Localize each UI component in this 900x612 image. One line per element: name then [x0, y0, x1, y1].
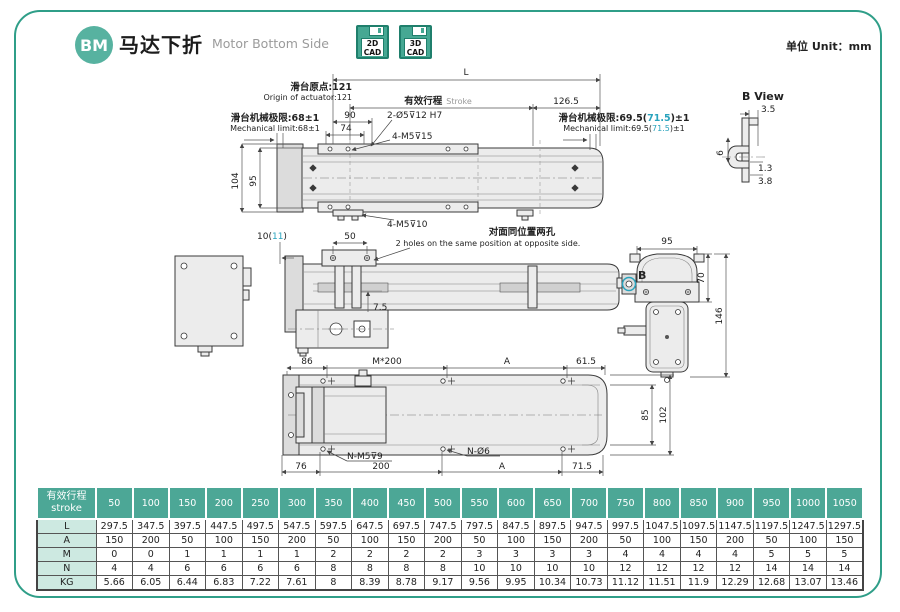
table-row: L297.5347.5397.5447.5497.5547.5597.5647.… [37, 519, 863, 534]
table-cell: 9.95 [498, 576, 535, 591]
row-label: N [37, 562, 96, 576]
table-cell: 100 [644, 534, 681, 548]
b-view: B View 3.5 6 1.3 3.8 [716, 90, 784, 187]
motor-end-view [175, 256, 251, 356]
table-cell: 11.9 [680, 576, 717, 591]
table-cell: 10 [571, 562, 608, 576]
table-cell: 8.78 [388, 576, 425, 591]
stroke-col-header: 900 [717, 487, 754, 519]
table-cell: 5 [753, 548, 790, 562]
dim-85: 85 [641, 409, 651, 420]
table-cell: 497.5 [242, 519, 279, 534]
limit-left-zh: 滑台机械极限:68±1 [231, 112, 320, 124]
model-badge: BM [75, 26, 113, 64]
table-cell: 4 [680, 548, 717, 562]
table-cell: 447.5 [206, 519, 243, 534]
table-cell: 897.5 [534, 519, 571, 534]
table-cell: 397.5 [169, 519, 206, 534]
table-cell: 1147.5 [717, 519, 754, 534]
table-cell: 7.22 [242, 576, 279, 591]
dim-10-11: 10(11) [257, 232, 287, 242]
b-callout-label: B [638, 269, 646, 282]
table-cell: 347.5 [133, 519, 170, 534]
table-row: N44666688881010101012121212141414 [37, 562, 863, 576]
table-cell: 12 [644, 562, 681, 576]
dim-102: 102 [659, 406, 669, 423]
dim-3-8: 3.8 [758, 177, 773, 187]
page-title-en: Motor Bottom Side [212, 36, 329, 51]
dim-50: 50 [344, 232, 356, 242]
origin-label-en: Origin of actuator:121 [263, 93, 352, 102]
table-cell: 297.5 [96, 519, 133, 534]
table-cell: 150 [826, 534, 863, 548]
label-opposite-holes-en: 2 holes on the same position at opposite… [396, 239, 581, 248]
table-cell: 997.5 [607, 519, 644, 534]
table-cell: 150 [680, 534, 717, 548]
side-view: 10(11) 50 4-M5⊽10 对面同位置两孔 2 holes on the… [257, 215, 619, 356]
table-cell: 8 [388, 562, 425, 576]
table-cell: 6.83 [206, 576, 243, 591]
table-cell: 2 [352, 548, 389, 562]
table-cell: 597.5 [315, 519, 352, 534]
table-cell: 1097.5 [680, 519, 717, 534]
table-cell: 4 [96, 562, 133, 576]
table-cell: 947.5 [571, 519, 608, 534]
stroke-col-header: 50 [96, 487, 133, 519]
table-cell: 1247.5 [790, 519, 827, 534]
table-cell: 5 [790, 548, 827, 562]
table-cell: 200 [571, 534, 608, 548]
table-cell: 150 [388, 534, 425, 548]
dim-L: L [463, 68, 468, 78]
stroke-table-body: L297.5347.5397.5447.5497.5547.5597.5647.… [37, 519, 863, 590]
table-cell: 2 [388, 548, 425, 562]
cad-3d-label-bottom: CAD [405, 49, 426, 58]
label-taps-bottom: 4-M5⊽10 [387, 220, 428, 230]
stroke-col-header: 700 [571, 487, 608, 519]
table-cell: 11.12 [607, 576, 644, 591]
table-cell: 200 [133, 534, 170, 548]
stroke-col-header: 1050 [826, 487, 863, 519]
table-row: KG5.666.056.446.837.227.6188.398.789.179… [37, 576, 863, 591]
table-cell: 50 [461, 534, 498, 548]
stroke-label: 有效行程Stroke [404, 95, 472, 107]
table-cell: 200 [279, 534, 316, 548]
table-cell: 9.56 [461, 576, 498, 591]
dim-104: 104 [231, 172, 241, 189]
stroke-col-header: 750 [607, 487, 644, 519]
dim-90: 90 [344, 111, 356, 121]
table-cell: 3 [461, 548, 498, 562]
table-cell: 14 [790, 562, 827, 576]
row-label: KG [37, 576, 96, 591]
table-cell: 1 [242, 548, 279, 562]
dim-A-top: A [504, 357, 511, 367]
table-cell: 50 [607, 534, 644, 548]
table-cell: 6.44 [169, 576, 206, 591]
cad-2d-label-bottom: CAD [362, 49, 383, 58]
stroke-col-header: 800 [644, 487, 681, 519]
table-cell: 0 [96, 548, 133, 562]
stroke-col-header: 100 [133, 487, 170, 519]
table-cell: 8.39 [352, 576, 389, 591]
table-cell: 100 [352, 534, 389, 548]
table-cell: 1197.5 [753, 519, 790, 534]
table-row: M001111222233334444555 [37, 548, 863, 562]
table-cell: 12 [607, 562, 644, 576]
dim-86: 86 [301, 357, 313, 367]
floppy-shutter-icon [369, 27, 384, 36]
row-label: M [37, 548, 96, 562]
label-taps-top: 4-M5⊽15 [392, 132, 433, 142]
table-cell: 12.29 [717, 576, 754, 591]
table-cell: 8 [425, 562, 462, 576]
stroke-col-header: 500 [425, 487, 462, 519]
stroke-table-head: 有效行程stroke501001502002503003504004505005… [37, 487, 863, 519]
stroke-table: 有效行程stroke501001502002503003504004505005… [36, 486, 864, 591]
dim-A-bottom: A [499, 462, 506, 472]
table-cell: 697.5 [388, 519, 425, 534]
stroke-col-header: 1000 [790, 487, 827, 519]
table-cell: 100 [498, 534, 535, 548]
table-cell: 4 [607, 548, 644, 562]
table-cell: 9.17 [425, 576, 462, 591]
stroke-col-header: 550 [461, 487, 498, 519]
table-cell: 10 [461, 562, 498, 576]
table-cell: 1 [206, 548, 243, 562]
limit-right-en: Mechanical limit:69.5(71.5)±1 [563, 124, 685, 133]
stroke-col-header: 600 [498, 487, 535, 519]
table-cell: 1047.5 [644, 519, 681, 534]
table-cell: 4 [644, 548, 681, 562]
top-view: L 滑台原点:121 Origin of actuator:121 有效行程St… [230, 68, 689, 220]
table-cell: 11.51 [644, 576, 681, 591]
table-cell: 3 [571, 548, 608, 562]
dim-74: 74 [340, 124, 352, 134]
table-cell: 200 [425, 534, 462, 548]
table-cell: 13.07 [790, 576, 827, 591]
table-cell: 150 [534, 534, 571, 548]
dim-76: 76 [295, 462, 307, 472]
table-cell: 4 [133, 562, 170, 576]
b-view-title: B View [742, 90, 784, 103]
table-cell: 10 [498, 562, 535, 576]
dim-6: 6 [716, 150, 726, 156]
table-cell: 13.46 [826, 576, 863, 591]
table-cell: 10.73 [571, 576, 608, 591]
dim-m200: M*200 [372, 357, 402, 367]
table-cell: 150 [96, 534, 133, 548]
table-cell: 6 [242, 562, 279, 576]
table-cell: 1 [279, 548, 316, 562]
table-cell: 100 [790, 534, 827, 548]
dim-95-width: 95 [661, 237, 672, 247]
origin-label-zh: 滑台原点:121 [290, 81, 352, 93]
table-row: A150200501001502005010015020050100150200… [37, 534, 863, 548]
table-cell: 797.5 [461, 519, 498, 534]
dim-126-5: 126.5 [553, 97, 579, 107]
label-holes-top: 2-Ø5⊽12 H7 [387, 110, 442, 121]
table-cell: 0 [133, 548, 170, 562]
stroke-col-header: 950 [753, 487, 790, 519]
table-cell: 12.68 [753, 576, 790, 591]
table-cell: 150 [242, 534, 279, 548]
unit-label: 单位 Unit：mm [786, 38, 872, 54]
dim-70: 70 [697, 272, 707, 284]
table-cell: 7.61 [279, 576, 316, 591]
stroke-col-header: 350 [315, 487, 352, 519]
table-cell: 847.5 [498, 519, 535, 534]
dim-61-5: 61.5 [576, 357, 596, 367]
table-cell: 1297.5 [826, 519, 863, 534]
table-cell: 50 [315, 534, 352, 548]
table-cell: 647.5 [352, 519, 389, 534]
table-cell: 3 [534, 548, 571, 562]
table-cell: 8 [352, 562, 389, 576]
label-n-m5: N-M5⊽9 [347, 452, 383, 462]
table-cell: 747.5 [425, 519, 462, 534]
dim-3-5: 3.5 [761, 105, 775, 115]
stroke-col-header: 200 [206, 487, 243, 519]
table-cell: 6 [279, 562, 316, 576]
table-cell: 200 [717, 534, 754, 548]
cross-section-view: B 95 70 146 [617, 237, 730, 383]
table-cell: 6 [169, 562, 206, 576]
stroke-col-header: 300 [279, 487, 316, 519]
table-cell: 12 [717, 562, 754, 576]
cad-2d-button[interactable]: 2D CAD [356, 25, 389, 59]
table-cell: 50 [169, 534, 206, 548]
table-cell: 6.05 [133, 576, 170, 591]
table-cell: 2 [315, 548, 352, 562]
dim-1-3: 1.3 [758, 164, 772, 174]
floppy-shutter-icon [412, 27, 427, 36]
stroke-col-header: 250 [242, 487, 279, 519]
table-cell: 6 [206, 562, 243, 576]
stroke-col-header: 400 [352, 487, 389, 519]
dim-7-5: 7.5 [373, 303, 387, 313]
technical-drawing: L 滑台原点:121 Origin of actuator:121 有效行程St… [30, 60, 870, 485]
table-cell: 50 [753, 534, 790, 548]
label-n-o6: N-Ø6 [467, 446, 490, 457]
label-opposite-holes-zh: 对面同位置两孔 [489, 226, 556, 238]
table-cell: 547.5 [279, 519, 316, 534]
table-cell: 1 [169, 548, 206, 562]
table-cell: 4 [717, 548, 754, 562]
stroke-col-header: 650 [534, 487, 571, 519]
page-title-zh: 马达下折 [119, 29, 203, 58]
table-cell: 10 [534, 562, 571, 576]
stroke-col-header: 850 [680, 487, 717, 519]
dim-146: 146 [715, 307, 725, 324]
row-label: A [37, 534, 96, 548]
table-cell: 5 [826, 548, 863, 562]
dim-71-5: 71.5 [572, 462, 592, 472]
table-cell: 10.34 [534, 576, 571, 591]
limit-right-zh: 滑台机械极限:69.5(71.5)±1 [559, 112, 690, 124]
table-cell: 100 [206, 534, 243, 548]
dim-95-height: 95 [249, 175, 259, 186]
limit-left-en: Mechanical limit:68±1 [230, 124, 320, 133]
table-cell: 14 [826, 562, 863, 576]
stroke-header-label: 有效行程stroke [37, 487, 96, 519]
table-cell: 5.66 [96, 576, 133, 591]
table-cell: 8 [315, 562, 352, 576]
row-label: L [37, 519, 96, 534]
table-cell: 2 [425, 548, 462, 562]
dim-200: 200 [372, 462, 389, 472]
table-cell: 12 [680, 562, 717, 576]
stroke-col-header: 150 [169, 487, 206, 519]
bottom-view: 86 M*200 A 61.5 N-M5⊽9 N-Ø6 76 200 A 71.… [282, 357, 674, 476]
table-cell: 8 [315, 576, 352, 591]
table-cell: 14 [753, 562, 790, 576]
stroke-col-header: 450 [388, 487, 425, 519]
cad-3d-button[interactable]: 3D CAD [399, 25, 432, 59]
table-cell: 3 [498, 548, 535, 562]
